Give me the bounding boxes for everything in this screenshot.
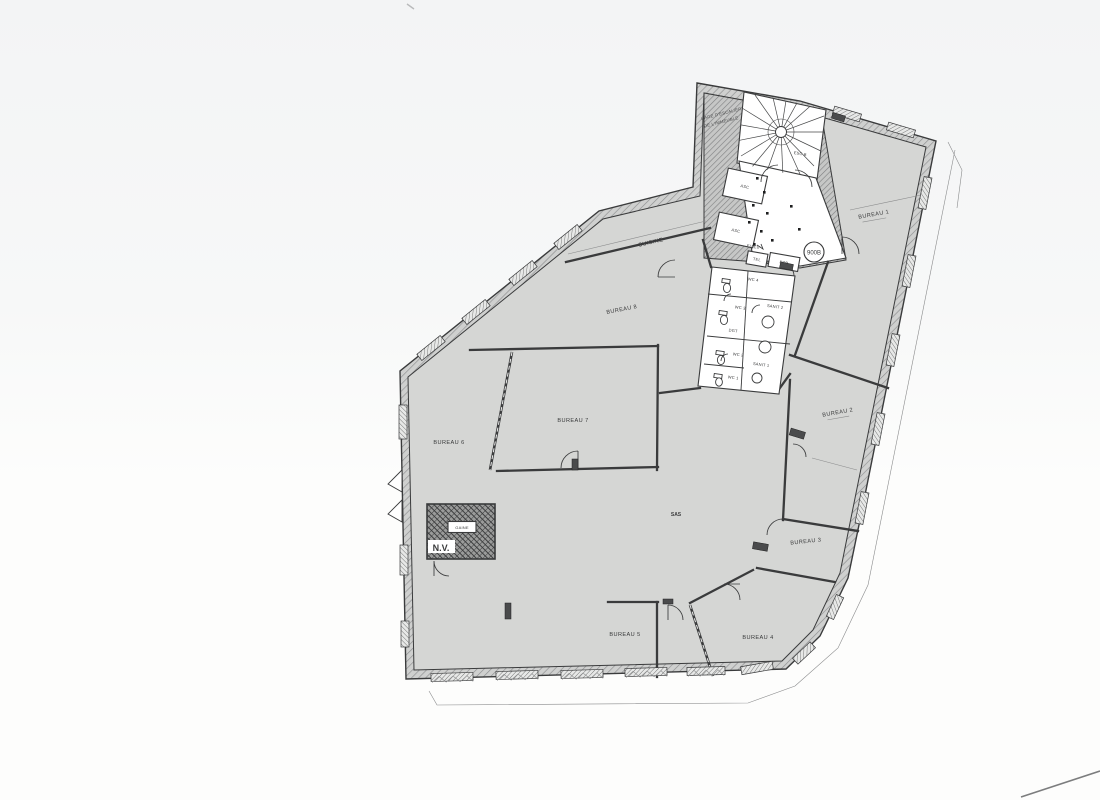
shaft-label: GAINE [455,525,469,530]
bay-triangle [388,500,402,522]
room-label-bureau-6: BUREAU 6 [433,440,464,446]
floor-plan-drawing: ESC B CAGE D'ESCALIER DE L'IMMEUBLE ASC … [0,0,1100,800]
scan-artifact-corner [1021,771,1100,797]
room-label-bureau-7: BUREAU 7 [557,418,588,424]
floor-area [408,93,926,670]
sanitary-block: WC 4 WC 3 SANIT 2 DGT WC 2 SANIT 1 WC 1 [698,267,795,394]
room-label-bureau-5: BUREAU 5 [609,632,640,638]
scan-artifact-top [407,4,414,9]
vent-label: N.V. [433,543,450,553]
door-tag-label: 900B [807,251,821,257]
room-label-bureau-4: BUREAU 4 [742,635,773,641]
door-tag: 900B [804,242,824,262]
room-label-sas: SAS [671,512,682,518]
door-leaf [663,599,673,604]
bay-triangle [388,470,402,492]
column [505,603,511,619]
door-leaf [572,459,578,470]
tel-box: TEL [746,251,768,267]
floor-plan-page: ESC B CAGE D'ESCALIER DE L'IMMEUBLE ASC … [0,0,1100,800]
